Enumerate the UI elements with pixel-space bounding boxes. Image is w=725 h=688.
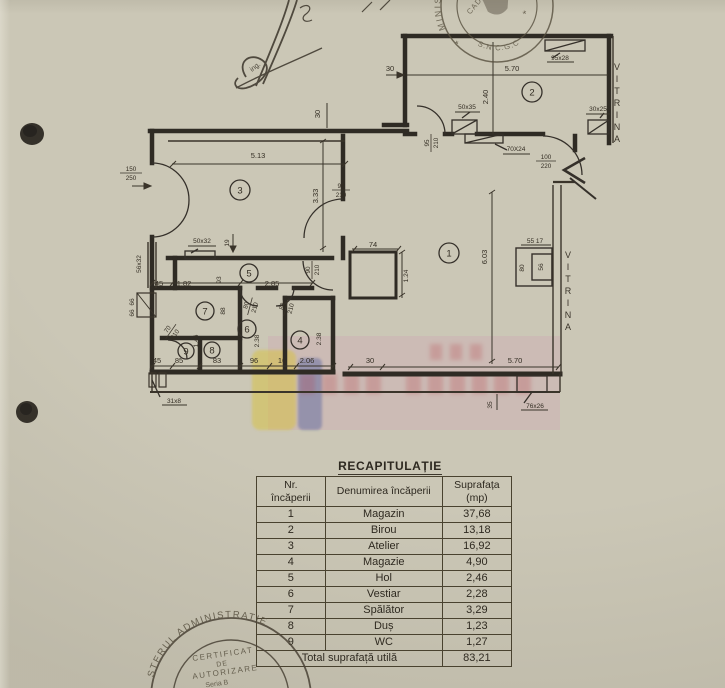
svg-text:2: 2 (529, 88, 534, 99)
signature-label: ing. (249, 61, 262, 73)
dim-label: 74 (369, 240, 377, 249)
window-30x25-icon (588, 113, 609, 134)
agency-watermark (252, 336, 560, 430)
svg-text:95: 95 (424, 139, 431, 147)
dim-label: 2.40 (481, 90, 490, 105)
dim-label: 1.46 (193, 334, 200, 347)
svg-text:7: 7 (202, 307, 207, 318)
room-number-3: 3 (230, 180, 250, 200)
stamp-star: * (522, 9, 528, 21)
dim-label: 5.70 (505, 64, 520, 73)
svg-text:8: 8 (209, 346, 214, 357)
door-arc-icon (417, 106, 445, 134)
dim-label: 56 (538, 263, 545, 271)
window-label: 31x8 (167, 398, 181, 405)
svg-text:100: 100 (541, 154, 552, 161)
window-label: 70X24 (507, 146, 526, 153)
dim-label: 96 (250, 356, 258, 365)
room-number-1: 1 (439, 243, 459, 263)
room-number-9: 9 (178, 343, 194, 359)
window-label: 30x25 (589, 106, 607, 113)
dim-label: 2.06 (300, 356, 315, 365)
door-symbols (152, 106, 596, 359)
svg-text:90: 90 (305, 266, 312, 274)
dim-label: 45 (155, 279, 163, 288)
dim-label: 45 (153, 356, 161, 365)
dim-label: 2.38 (316, 332, 323, 345)
double-door-leaf-icon (152, 163, 189, 200)
svg-text:250: 250 (126, 175, 137, 182)
room-numbers: 1 2 3 4 5 6 7 8 9 (178, 82, 542, 359)
dim-label: 1.82 (177, 279, 192, 288)
svg-text:Seria B: Seria B (205, 679, 229, 688)
round-stamp-bottom: STERUL ADMINISTRATIE CERTIFICAT DE AUTOR… (138, 599, 321, 688)
svg-text:220: 220 (541, 163, 552, 170)
stamp-star: * (454, 39, 460, 51)
door-label-150-250: 150 250 (120, 166, 142, 182)
svg-text:6: 6 (244, 325, 249, 336)
double-door-leaf-icon (152, 200, 189, 237)
window-label: 56x32 (136, 255, 143, 273)
vitrina-label: VITRINA (612, 62, 622, 146)
stamp-inner-lines: CERTIFICAT DE AUTORIZARE Seria B (189, 645, 260, 688)
svg-text:210: 210 (433, 137, 440, 148)
dim-label: 2.38 (254, 334, 261, 347)
window-70x24-icon (465, 134, 507, 150)
signature: ing. (235, 0, 390, 88)
pen-marks (362, 0, 390, 12)
dim-label: 80 (519, 264, 526, 272)
svg-text:210: 210 (336, 192, 347, 199)
scanned-floor-plan-document: RECAPITULAȚIE Nr.încăperii Denumirea înc… (0, 0, 725, 688)
room-number-7: 7 (196, 302, 214, 320)
dim-label: 19 (224, 239, 231, 247)
window-label: 95x28 (551, 55, 569, 62)
dim-label: 16 (278, 356, 286, 365)
svg-text:210: 210 (251, 301, 261, 313)
door-label-95-210: 95 210 (424, 134, 440, 152)
dim-label: 1.24 (403, 269, 410, 282)
svg-text:90: 90 (337, 183, 345, 190)
dim-label: 30 (366, 356, 374, 365)
svg-text:1: 1 (446, 249, 451, 260)
dim-label: 66 (129, 298, 136, 306)
dim-label: 66 (129, 309, 136, 317)
svg-text:3: 3 (237, 186, 242, 197)
dim-label: 2.85 (265, 279, 280, 288)
stamp-arc-text: MINISTER (426, 0, 461, 32)
dim-label: 35 (487, 401, 494, 409)
svg-text:5: 5 (246, 269, 251, 280)
punch-holes (16, 123, 44, 423)
dim-label: 88 (220, 307, 227, 315)
vitrina-label: VITRINA (563, 250, 573, 334)
dim-label: 5.70 (508, 356, 523, 365)
room-number-5: 5 (240, 264, 258, 282)
window-label: 50x35 (458, 104, 476, 111)
window-50x35-icon (452, 112, 477, 134)
room-number-8: 8 (204, 342, 220, 358)
svg-text:210: 210 (287, 302, 297, 314)
dim-label: 5.13 (251, 151, 266, 160)
dim-label: 3.33 (311, 189, 320, 204)
dim-label: 30 (386, 64, 394, 73)
walls (150, 36, 611, 374)
svg-text:210: 210 (314, 264, 321, 275)
window-label: 50x32 (193, 238, 211, 245)
coat-of-arms-icon (480, 0, 512, 17)
dim-label: 30 (313, 110, 322, 118)
svg-text:9: 9 (183, 347, 188, 358)
window-label: 76x26 (526, 403, 544, 410)
room-number-2: 2 (522, 82, 542, 102)
svg-text:4: 4 (297, 336, 302, 347)
dim-label: 93 (216, 276, 223, 284)
floor-plan-drawing: 30 5.70 2.40 95x28 50x35 30x25 70X24 5.1… (0, 0, 725, 688)
door-size-labels: 150 250 90 210 90 210 80 210 80 (120, 134, 556, 344)
svg-text:150: 150 (126, 166, 137, 173)
door-label-100-220: 100 220 (536, 154, 556, 170)
dim-label: 6.03 (480, 250, 489, 265)
dim-label: 55 17 (527, 238, 544, 245)
